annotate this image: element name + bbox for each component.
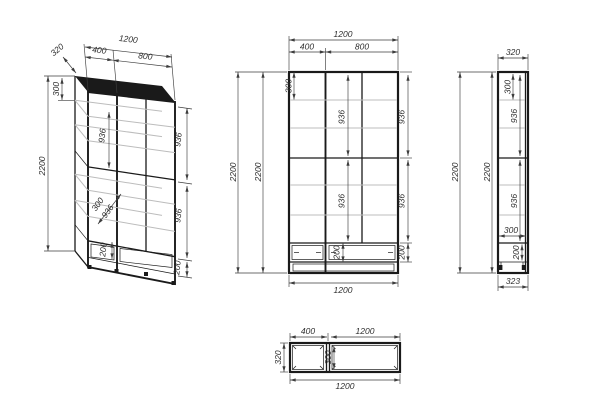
side-dim-top-section: 300	[503, 80, 513, 94]
top-dim-width-left: 400	[301, 326, 315, 336]
front-dim-width-left: 400	[300, 42, 314, 52]
iso-dim-mid-drawer: 200	[97, 242, 109, 258]
iso-dimension-labels: 320 400 1200 800 300 2200 936 300 936 20…	[37, 33, 184, 276]
iso-shelves	[75, 100, 175, 231]
top-outline	[290, 343, 400, 372]
top-inner-right	[332, 346, 398, 370]
front-dim-height-inner: 2200	[253, 162, 263, 182]
side-view: 320 2200 2200 300 936 936 300 200 323	[450, 47, 528, 291]
top-dimension-labels: 400 1200 320 300 1200	[273, 326, 375, 391]
top-dim-width-right: 1200	[356, 326, 375, 336]
front-dim-top-section: 300	[284, 79, 294, 93]
side-dim-height-inner: 2200	[482, 162, 492, 182]
iso-dim-width-total: 1200	[118, 33, 138, 45]
top-dim-divider-depth: 300	[323, 350, 333, 364]
side-dim-inner-depth: 300	[504, 225, 518, 235]
side-dim-depth-top: 320	[506, 47, 520, 57]
cabinet-technical-drawing: 320 400 1200 800 300 2200 936 300 936 20…	[0, 0, 600, 400]
top-view: 400 1200 320 300 1200	[273, 326, 400, 391]
iso-dim-height-total: 2200	[37, 156, 47, 176]
iso-dim-mid-upper: 936	[96, 128, 107, 143]
front-dim-width-total: 1200	[334, 29, 353, 39]
iso-dim-right-upper: 936	[172, 132, 183, 147]
front-dimensions	[235, 36, 412, 287]
iso-dim-depth: 320	[48, 41, 66, 58]
iso-dim-top-section: 300	[51, 82, 61, 96]
side-dim-drawer: 200	[511, 245, 521, 260]
iso-top-panel	[75, 76, 175, 102]
front-dim-mid-upper: 936	[337, 110, 347, 124]
top-dim-depth: 320	[273, 350, 283, 364]
iso-dim-right-drawer: 200	[171, 260, 183, 276]
front-dim-right-upper: 936	[397, 110, 407, 124]
top-inner-left	[293, 346, 324, 370]
top-corner-marks	[293, 346, 398, 370]
side-dim-height-outer: 2200	[450, 162, 460, 182]
top-dim-width-bottom: 1200	[336, 381, 355, 391]
side-dim-depth-bottom: 323	[506, 276, 520, 286]
front-view: 1200 400 800 2200 2200 300 936 936 936 9…	[228, 29, 412, 295]
iso-dim-width-right: 800	[138, 50, 153, 62]
front-dim-mid-lower: 936	[337, 194, 347, 208]
drawing-canvas: 320 400 1200 800 300 2200 936 300 936 20…	[0, 0, 600, 400]
top-dimensions	[280, 333, 400, 384]
front-dim-mid-drawer: 200	[332, 245, 342, 260]
front-dim-width-right: 800	[355, 42, 369, 52]
iso-dim-right-lower: 936	[172, 208, 183, 223]
side-dim-lower: 936	[509, 194, 519, 208]
front-dim-right-drawer: 200	[397, 245, 407, 260]
iso-dimensions	[44, 44, 192, 278]
iso-dim-width-left: 400	[92, 44, 107, 56]
front-dim-right-lower: 936	[397, 194, 407, 208]
side-dimension-labels: 320 2200 2200 300 936 936 300 200 323	[450, 47, 521, 286]
front-plinth	[293, 264, 394, 271]
front-dim-width-bottom: 1200	[334, 285, 353, 295]
side-dim-upper: 936	[509, 109, 519, 123]
front-dimension-labels: 1200 400 800 2200 2200 300 936 936 936 9…	[228, 29, 407, 295]
isometric-view: 320 400 1200 800 300 2200 936 300 936 20…	[37, 33, 192, 285]
front-dim-height-outer: 2200	[228, 162, 238, 182]
